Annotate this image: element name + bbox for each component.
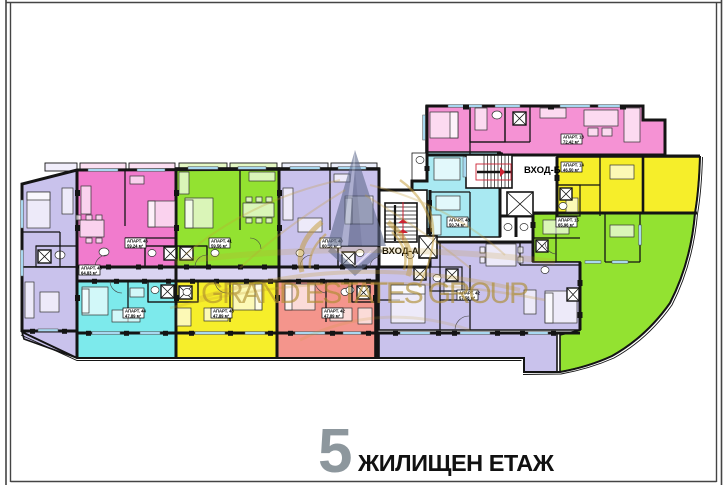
svg-text:65,96 м²: 65,96 м² <box>558 223 575 228</box>
svg-text:5: 5 <box>318 417 352 485</box>
svg-text:59,56 м²: 59,56 м² <box>211 244 228 249</box>
svg-text:47,89 м²: 47,89 м² <box>213 314 230 319</box>
svg-text:47,89 м²: 47,89 м² <box>125 314 142 319</box>
svg-text:59,24 м²: 59,24 м² <box>127 244 144 249</box>
svg-text:ЖИЛИЩЕН ЕТАЖ: ЖИЛИЩЕН ЕТАЖ <box>357 450 555 476</box>
svg-text:GRAND ESTATES GROUP: GRAND ESTATES GROUP <box>201 277 531 310</box>
svg-text:72,42 м²: 72,42 м² <box>563 140 580 145</box>
svg-text:64,83 м²: 64,83 м² <box>81 271 98 276</box>
svg-text:47,89 м²: 47,89 м² <box>324 314 341 319</box>
svg-text:46,50 м²: 46,50 м² <box>563 168 580 173</box>
svg-text:ВХОД-Б: ВХОД-Б <box>524 165 561 176</box>
